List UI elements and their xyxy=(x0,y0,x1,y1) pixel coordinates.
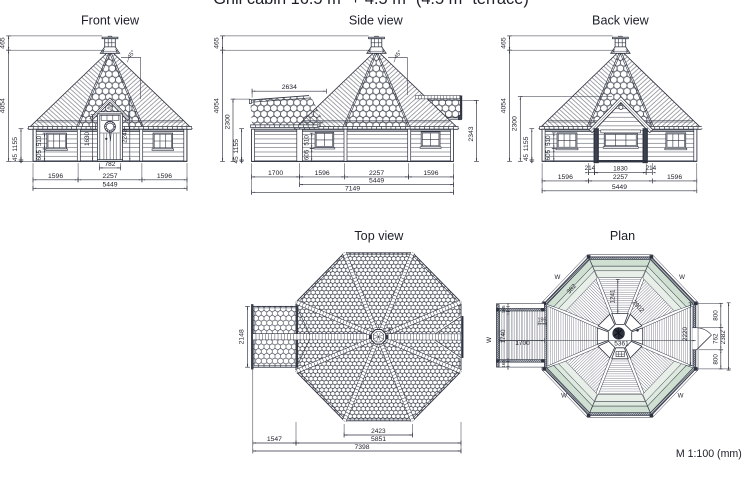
svg-text:1740: 1740 xyxy=(500,329,507,344)
svg-text:1700: 1700 xyxy=(268,170,283,177)
svg-text:2300: 2300 xyxy=(224,114,231,129)
svg-text:Front view: Front view xyxy=(81,13,140,27)
svg-text:1596: 1596 xyxy=(423,170,438,177)
svg-text:465: 465 xyxy=(500,37,507,49)
svg-text:762: 762 xyxy=(712,333,719,344)
svg-text:Side view: Side view xyxy=(349,13,404,27)
svg-text:165: 165 xyxy=(501,359,507,367)
svg-text:1155: 1155 xyxy=(12,137,19,152)
svg-text:465: 465 xyxy=(213,37,220,49)
svg-text:2300: 2300 xyxy=(512,116,519,131)
svg-text:45°: 45° xyxy=(107,105,114,110)
svg-text:W: W xyxy=(561,392,567,399)
svg-text:W: W xyxy=(679,274,685,281)
svg-text:1596: 1596 xyxy=(558,174,573,181)
svg-text:1596: 1596 xyxy=(667,174,682,181)
svg-text:1596: 1596 xyxy=(315,170,330,177)
svg-text:510: 510 xyxy=(545,135,552,146)
svg-text:2423: 2423 xyxy=(371,428,386,435)
svg-text:Top view: Top view xyxy=(354,229,404,243)
svg-text:605: 605 xyxy=(545,149,552,160)
svg-text:1596: 1596 xyxy=(48,173,63,180)
svg-text:2148: 2148 xyxy=(239,329,246,344)
svg-text:2257: 2257 xyxy=(369,170,384,177)
svg-text:5449: 5449 xyxy=(102,181,117,188)
svg-text:45: 45 xyxy=(12,154,19,162)
svg-text:1630: 1630 xyxy=(84,132,91,147)
svg-text:7149: 7149 xyxy=(345,185,360,192)
svg-text:W: W xyxy=(554,274,560,281)
svg-text:45: 45 xyxy=(233,156,240,164)
svg-text:165: 165 xyxy=(501,305,507,313)
svg-text:Back view: Back view xyxy=(592,13,650,27)
svg-text:1241: 1241 xyxy=(609,289,616,304)
svg-text:782: 782 xyxy=(105,161,116,168)
svg-text:2343: 2343 xyxy=(468,126,475,141)
svg-text:5449: 5449 xyxy=(369,178,384,185)
svg-text:5449: 5449 xyxy=(612,184,627,191)
svg-text:214: 214 xyxy=(646,165,657,172)
svg-text:4054: 4054 xyxy=(0,98,6,113)
svg-text:W: W xyxy=(486,337,493,343)
svg-text:605: 605 xyxy=(303,149,310,160)
svg-text:5361: 5361 xyxy=(614,340,629,347)
svg-text:1155: 1155 xyxy=(233,139,240,154)
svg-text:Grill cabin 16.5 m² + 4.5 m²: Grill cabin 16.5 m² + 4.5 m² (4.5 m² ter… xyxy=(213,0,529,8)
svg-text:M 1:100 (mm): M 1:100 (mm) xyxy=(676,448,742,460)
svg-text:5851: 5851 xyxy=(371,436,386,443)
svg-text:W: W xyxy=(678,392,684,399)
svg-text:1596: 1596 xyxy=(157,173,172,180)
svg-text:510: 510 xyxy=(36,135,43,146)
svg-text:2220: 2220 xyxy=(682,327,689,342)
svg-text:2257: 2257 xyxy=(613,174,628,181)
svg-text:45: 45 xyxy=(523,154,530,162)
svg-text:1830: 1830 xyxy=(613,166,628,173)
svg-text:7398: 7398 xyxy=(354,444,369,451)
svg-text:4054: 4054 xyxy=(213,98,220,113)
svg-text:2257: 2257 xyxy=(102,173,117,180)
svg-text:800: 800 xyxy=(712,310,719,321)
svg-text:605: 605 xyxy=(36,149,43,160)
svg-text:195: 195 xyxy=(538,317,547,323)
svg-text:4054: 4054 xyxy=(500,98,507,113)
svg-text:2382: 2382 xyxy=(720,330,727,345)
svg-text:465: 465 xyxy=(0,37,6,49)
svg-text:214: 214 xyxy=(585,165,596,172)
svg-text:510: 510 xyxy=(303,135,310,146)
svg-text:1700: 1700 xyxy=(515,340,530,347)
svg-text:1547: 1547 xyxy=(267,436,282,443)
svg-text:2243: 2243 xyxy=(121,129,128,144)
svg-text:Plan: Plan xyxy=(610,229,635,243)
svg-text:2634: 2634 xyxy=(282,84,297,91)
svg-text:800: 800 xyxy=(712,354,719,365)
svg-text:1155: 1155 xyxy=(523,136,530,151)
